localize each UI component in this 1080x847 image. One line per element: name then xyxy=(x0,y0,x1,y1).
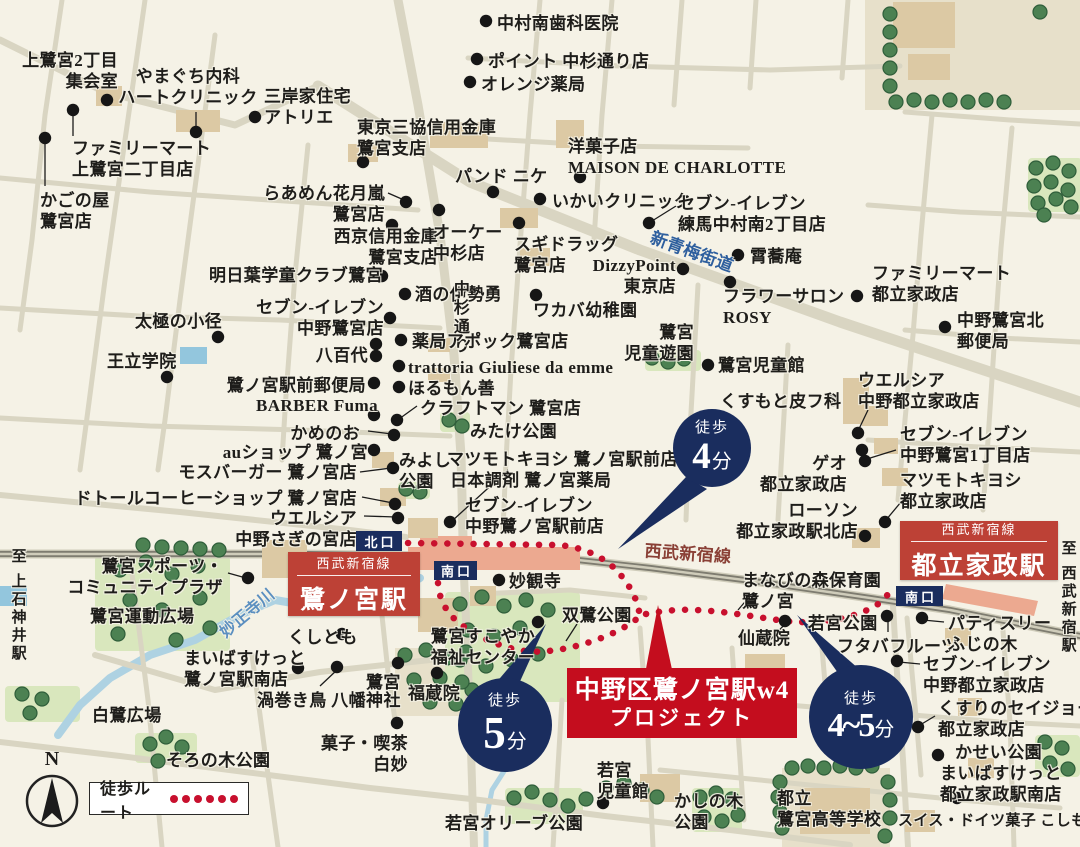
map-label: 八百代 xyxy=(316,345,368,366)
map-label: 鷺ノ宮駅前郵便局 xyxy=(227,375,366,396)
poi-dot xyxy=(939,321,951,333)
legend: 徒歩ルート xyxy=(89,782,249,815)
map-label: まいばすけっと 都立家政駅南店 xyxy=(940,763,1062,805)
tree-icon xyxy=(143,737,157,751)
map-label: くしとも xyxy=(288,627,358,648)
walk-badge-pointer xyxy=(618,477,707,549)
map-label: ゲオ 都立家政店 xyxy=(760,453,847,495)
tree-icon xyxy=(997,95,1011,109)
map-label: くすりのセイジョー 都立家政店 xyxy=(938,698,1080,740)
poi-dot xyxy=(677,263,689,275)
poi-dot xyxy=(249,111,261,123)
map-label: 鷺宮スポーツ・ コミュニティプラザ xyxy=(67,556,223,598)
tree-icon xyxy=(475,590,489,604)
walk-unit: 分 xyxy=(874,720,894,740)
poi-dot xyxy=(534,193,546,205)
poi-dot xyxy=(852,427,864,439)
tree-icon xyxy=(1064,200,1078,214)
walk-time-badge-4min: 徒歩 4 分 xyxy=(673,409,751,487)
tree-icon xyxy=(883,793,897,807)
tree-icon xyxy=(1037,208,1051,222)
map-label: 中野鷺宮北 郵便局 xyxy=(957,310,1044,352)
rail-line-name: 西武新宿線 xyxy=(297,553,411,576)
map-label: 洋菓子店 MAISON DE CHARLOTTE xyxy=(568,136,786,178)
tree-icon xyxy=(1055,741,1069,755)
map-label: 西京信用金庫 鷺宮支店 xyxy=(334,226,438,268)
map-label: みよし 公園 xyxy=(399,450,451,492)
poi-dot xyxy=(513,217,525,229)
poi-dot xyxy=(859,455,871,467)
map-label: auショップ 鷺ノ宮 xyxy=(223,442,368,463)
tree-icon xyxy=(925,95,939,109)
poi-dot xyxy=(879,516,891,528)
tree-icon xyxy=(943,93,957,107)
poi-dot xyxy=(779,615,791,627)
map-label: らあめん花月嵐 鷺宮店 xyxy=(263,183,385,225)
rail-line-name: 西武新宿線 xyxy=(911,519,1047,542)
tree-icon xyxy=(881,775,895,789)
poi-dot xyxy=(480,15,492,27)
legend-walk-route-label: 徒歩ルート xyxy=(100,775,161,823)
project-callout-pointer xyxy=(645,605,673,674)
map-label: ほるもん善 xyxy=(408,378,495,399)
tree-icon xyxy=(497,599,511,613)
map-label: そろの木公園 xyxy=(166,750,270,771)
map-label: ワカバ幼稚園 xyxy=(533,300,637,321)
walk-prefix: 徒歩 xyxy=(695,421,729,436)
map-label: いかいクリニック xyxy=(552,191,691,212)
map-label: 鷺宮 xyxy=(366,672,401,693)
map-label: 仙蔵院 xyxy=(738,628,790,649)
tree-icon xyxy=(1049,192,1063,206)
poi-dot xyxy=(487,186,499,198)
tree-icon xyxy=(169,633,183,647)
map-label: まなびの森保育園 鷺ノ宮 xyxy=(742,570,881,612)
map-label: 日本調剤 鷺ノ宮薬局 xyxy=(450,470,611,491)
poi-dot xyxy=(393,381,405,393)
station-name: 都立家政駅 xyxy=(911,546,1046,582)
tree-icon xyxy=(35,692,49,706)
tree-icon xyxy=(801,759,815,773)
tree-icon xyxy=(883,61,897,75)
map-label: 王立学院 xyxy=(107,351,177,372)
project-name: 中野区鷺ノ宮駅w4 xyxy=(575,677,790,705)
tree-icon xyxy=(193,542,207,556)
walk-time-badge-4-5min: 徒歩 4~5 分 xyxy=(809,665,913,769)
tree-icon xyxy=(543,793,557,807)
tree-icon xyxy=(519,593,533,607)
poi-dot xyxy=(444,516,456,528)
tree-icon xyxy=(541,603,555,617)
walk-minutes: 4~5 xyxy=(828,709,874,743)
map-label: DizzyPoint 東京店 xyxy=(593,255,676,297)
poi-dot xyxy=(702,359,714,371)
map-label: セブン-イレブン 中野都立家政店 xyxy=(923,654,1051,696)
tree-icon xyxy=(817,761,831,775)
tree-icon xyxy=(1027,179,1041,193)
map-label: モスバーガー 鷺ノ宮店 xyxy=(178,462,357,483)
tree-icon xyxy=(159,730,173,744)
tree-icon xyxy=(1062,164,1076,178)
map-label: 太極の小径 xyxy=(135,311,222,332)
tree-icon xyxy=(883,811,897,825)
map-label: スイス・ドイツ菓子 こしもと xyxy=(898,812,1080,831)
map-label: オーケー 中杉店 xyxy=(433,222,503,264)
poi-dot xyxy=(856,444,868,456)
map-label: 若宮公園 xyxy=(808,613,878,634)
tree-icon xyxy=(1046,156,1060,170)
map-label: ファミリーマート 上鷺宮二丁目店 xyxy=(72,138,211,180)
poi-dot xyxy=(370,338,382,350)
poi-dot xyxy=(399,288,411,300)
poi-dot xyxy=(242,572,254,584)
walk-unit: 分 xyxy=(712,452,732,472)
poi-dot xyxy=(395,334,407,346)
map-label: セブン-イレブン 中野鷺ノ宮駅前店 xyxy=(465,495,604,537)
tree-icon xyxy=(151,754,165,768)
tree-icon xyxy=(1061,762,1075,776)
map-label: みたけ公園 xyxy=(470,421,557,442)
tree-icon xyxy=(203,621,217,635)
map-label: 白鷺広場 xyxy=(92,705,162,726)
poi-dot xyxy=(368,377,380,389)
map-label: ファミリーマート 都立家政店 xyxy=(872,263,1011,305)
poi-dot xyxy=(859,530,871,542)
map-label: セブン-イレブン 練馬中村南2丁目店 xyxy=(678,193,826,235)
tree-icon xyxy=(136,538,150,552)
tree-icon xyxy=(212,543,226,557)
map-label: 都立 鷺宮高等学校 xyxy=(777,788,881,830)
walk-unit: 分 xyxy=(507,732,527,752)
map-label: ウエルシア xyxy=(270,508,357,529)
map-label: 妙観寺 xyxy=(509,571,561,592)
tree-icon xyxy=(961,95,975,109)
tree-icon xyxy=(979,93,993,107)
map-label: 上鷺宮2丁目 集会室 xyxy=(22,50,118,92)
map-label: 双鷺公園 xyxy=(562,605,632,626)
map-label: 渦巻き鳥 八幡神社 xyxy=(257,690,401,711)
tree-icon xyxy=(883,25,897,39)
map-label: 福蔵院 xyxy=(408,683,460,704)
map-label: フラワーサロン ROSY xyxy=(723,286,844,328)
tree-icon xyxy=(155,540,169,554)
map-label: 若宮 児童館 xyxy=(597,760,649,802)
project-name-line2: プロジェクト xyxy=(610,708,754,729)
poi-dot xyxy=(471,53,483,65)
map-label: パティスリー ふじの木 xyxy=(948,613,1051,655)
map-label: マツモトキヨシ 鷺ノ宮駅前店 xyxy=(447,449,678,470)
map-label: 若宮オリーブ公園 xyxy=(445,813,583,834)
poi-dot xyxy=(67,104,79,116)
poi-dot xyxy=(392,657,404,669)
poi-dot xyxy=(392,512,404,524)
map-label: 霄蕎庵 xyxy=(750,246,802,267)
map-label: 鷺宮児童館 xyxy=(718,355,805,376)
map-label: 至 上石神井駅 xyxy=(8,548,27,663)
tree-icon xyxy=(878,829,892,843)
map-label: オレンジ薬局 xyxy=(481,74,585,95)
tree-icon xyxy=(525,785,539,799)
map-label: かごの屋 鷺宮店 xyxy=(40,190,110,232)
map-label: ウエルシア 中野都立家政店 xyxy=(858,370,980,412)
poi-dot xyxy=(190,126,202,138)
poi-dot xyxy=(391,414,403,426)
station-sign-saginomiya: 西武新宿線 鷺ノ宮駅 xyxy=(288,552,420,616)
map-label: かしの木 公園 xyxy=(674,791,744,833)
tree-icon xyxy=(650,790,664,804)
poi-dot xyxy=(389,498,401,510)
map-label: やまぐち内科 ハートクリニック xyxy=(118,66,257,108)
map-label: ドトールコーヒーショップ 鷺ノ宮店 xyxy=(75,488,357,509)
tree-icon xyxy=(1044,175,1058,189)
map-label: かめのお xyxy=(290,423,360,444)
map-label: 三岸家住宅 アトリエ xyxy=(264,86,351,128)
poi-dot xyxy=(39,132,51,144)
poi-dot xyxy=(101,94,113,106)
poi-dot xyxy=(431,667,443,679)
map-label: パンド ニケ xyxy=(455,166,548,187)
gate-label-south-kasei: 南口 xyxy=(896,586,943,606)
station-name: 鷺ノ宮駅 xyxy=(300,580,408,616)
tree-icon xyxy=(1061,183,1075,197)
route-dots-sample xyxy=(170,795,238,803)
map-label: 鷺宮 児童遊園 xyxy=(624,322,694,364)
tree-icon xyxy=(907,93,921,107)
poi-dot xyxy=(433,204,445,216)
tree-icon xyxy=(561,799,575,813)
poi-dot xyxy=(212,331,224,343)
map-label: trattoria Giuliese da emme xyxy=(408,357,613,378)
map-label: 鷺宮運動広場 xyxy=(90,606,194,627)
poi-dot xyxy=(161,371,173,383)
poi-dot xyxy=(851,290,863,302)
compass-north-label: N xyxy=(45,748,60,770)
tree-icon xyxy=(883,79,897,93)
poi-dot xyxy=(932,749,944,761)
tree-icon xyxy=(579,792,593,806)
tree-icon xyxy=(883,43,897,57)
map-label: 鷺宮すこやか 福祉センター xyxy=(431,626,535,668)
walk-prefix: 徒歩 xyxy=(488,694,522,709)
tree-icon xyxy=(889,95,903,109)
poi-dot xyxy=(368,444,380,456)
tree-icon xyxy=(883,7,897,21)
poi-dot xyxy=(916,612,928,624)
poi-dot xyxy=(384,312,396,324)
tree-icon xyxy=(23,706,37,720)
poi-dot xyxy=(391,717,403,729)
map-label: 中野さぎの宮店 xyxy=(235,529,357,550)
access-map: 上鷺宮2丁目 集会室やまぐち内科 ハートクリニック三岸家住宅 アトリエファミリー… xyxy=(0,0,1080,847)
walk-minutes: 4 xyxy=(692,438,711,475)
map-label: かせい公園 xyxy=(955,742,1042,763)
poi-dot xyxy=(493,574,505,586)
gate-label-north: 北口 xyxy=(356,531,402,551)
walk-time-badge-5min: 徒歩 5 分 xyxy=(458,678,552,772)
map-label: 菓子・喫茶 白妙 xyxy=(321,733,408,775)
poi-dot xyxy=(388,429,400,441)
map-label: セブン-イレブン 中野鷺宮店 xyxy=(256,297,384,339)
map-label: 東京三協信用金庫 鷺宮支店 xyxy=(357,117,496,159)
compass: N xyxy=(20,748,84,832)
tree-icon xyxy=(773,775,787,789)
map-label: 薬局アポック鷺宮店 xyxy=(412,331,569,352)
tree-icon xyxy=(1029,161,1043,175)
walk-minutes: 5 xyxy=(483,711,506,756)
tree-icon xyxy=(111,627,125,641)
poi-dot xyxy=(331,661,343,673)
walk-prefix: 徒歩 xyxy=(844,692,878,707)
tree-icon xyxy=(785,761,799,775)
project-location-callout: 中野区鷺ノ宮駅w4 プロジェクト xyxy=(567,668,797,738)
poi-dot xyxy=(370,350,382,362)
map-label: セブン-イレブン 中野鷺宮1丁目店 xyxy=(900,424,1031,466)
north-arrow-icon xyxy=(41,778,63,823)
map-label: ローソン 都立家政駅北店 xyxy=(736,500,858,542)
map-label: BARBER Fuma xyxy=(256,395,378,416)
map-label: 至 西武新宿駅 xyxy=(1058,540,1077,655)
tree-icon xyxy=(174,541,188,555)
poi-dot xyxy=(393,360,405,372)
tree-icon xyxy=(15,687,29,701)
tree-icon xyxy=(507,791,521,805)
gate-label-south-saginomiya: 南口 xyxy=(434,561,477,580)
map-label: くすもと皮フ科 xyxy=(720,391,841,412)
tree-icon xyxy=(455,419,469,433)
map-label: ポイント 中杉通り店 xyxy=(488,51,649,72)
station-sign-toritsu-kasei: 西武新宿線 都立家政駅 xyxy=(900,521,1058,580)
poi-dot xyxy=(400,196,412,208)
map-label: まいばすけっと 鷺ノ宮駅南店 xyxy=(184,648,306,690)
map-label: 中村南歯科医院 xyxy=(497,13,619,34)
tree-icon xyxy=(453,597,467,611)
poi-dot xyxy=(912,721,924,733)
map-label: クラフトマン 鷺宮店 xyxy=(420,398,581,419)
map-label: マツモトキヨシ 都立家政店 xyxy=(900,470,1022,512)
tree-icon xyxy=(1033,5,1047,19)
poi-dot xyxy=(464,76,476,88)
poi-dot xyxy=(881,610,893,622)
poi-dot xyxy=(387,462,399,474)
map-label: 明日葉学童クラブ鷺宮 xyxy=(209,265,383,286)
